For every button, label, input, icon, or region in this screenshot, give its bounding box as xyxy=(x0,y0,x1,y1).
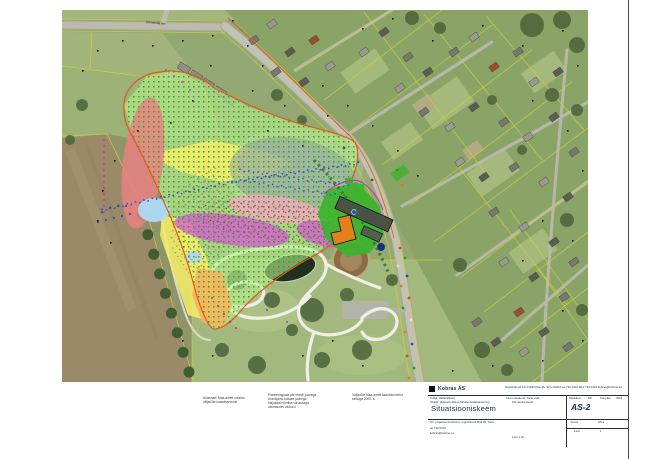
company-name: Kobras AS xyxy=(438,386,465,392)
tb-rule-3 xyxy=(566,428,628,429)
note-block-c: Väljavõte Maa-ameti kaardiserveristseisu… xyxy=(352,393,428,401)
stage-label: Staadium xyxy=(569,397,581,400)
map-aerial-view: Kõrveküla tee xyxy=(62,10,588,382)
firm-line: OÜ projekteerimisbüroo registrikood Riia… xyxy=(430,421,560,424)
firm-line2: tel 730 0310 xyxy=(430,427,490,430)
small-pond-dark xyxy=(377,243,385,251)
bottom-center-text: Leht 1 (1) xyxy=(512,436,544,439)
company-contact-line: Registrikood 10171636 Riia 35, Tartu 504… xyxy=(505,386,626,389)
drawing-number: AS-2 xyxy=(571,402,590,412)
tb-rule-2 xyxy=(428,419,628,420)
drawing-title: Situatsiooniskeem xyxy=(431,404,496,413)
tb-rule-1 xyxy=(428,395,628,396)
sheets-value: 1 xyxy=(600,430,602,433)
sheet-value: AS-2 xyxy=(598,421,604,424)
stage-value: DP xyxy=(588,397,592,400)
date-value: 2009 xyxy=(616,397,622,400)
drawing-sheet: Kõrveküla tee Aluskaart: Maa-ameti ortof… xyxy=(0,0,650,459)
sheet-frame-right xyxy=(628,0,629,459)
firm-line3: kobras@kobras.ee xyxy=(430,432,490,435)
tb-divider xyxy=(566,395,567,447)
note-block-a: Aluskaart: Maa-ameti ortofotoväljavõte k… xyxy=(203,396,265,404)
note-block-b: Planeeringuala piir oranži joonegakrundi… xyxy=(268,393,348,409)
sheet-label: Joonis xyxy=(570,421,578,424)
date-label: Kuupäev xyxy=(600,397,611,400)
sheets-label: Leht xyxy=(574,430,580,433)
company-logo xyxy=(429,386,435,392)
location-line2: Kõrveküla alevik xyxy=(512,401,562,404)
